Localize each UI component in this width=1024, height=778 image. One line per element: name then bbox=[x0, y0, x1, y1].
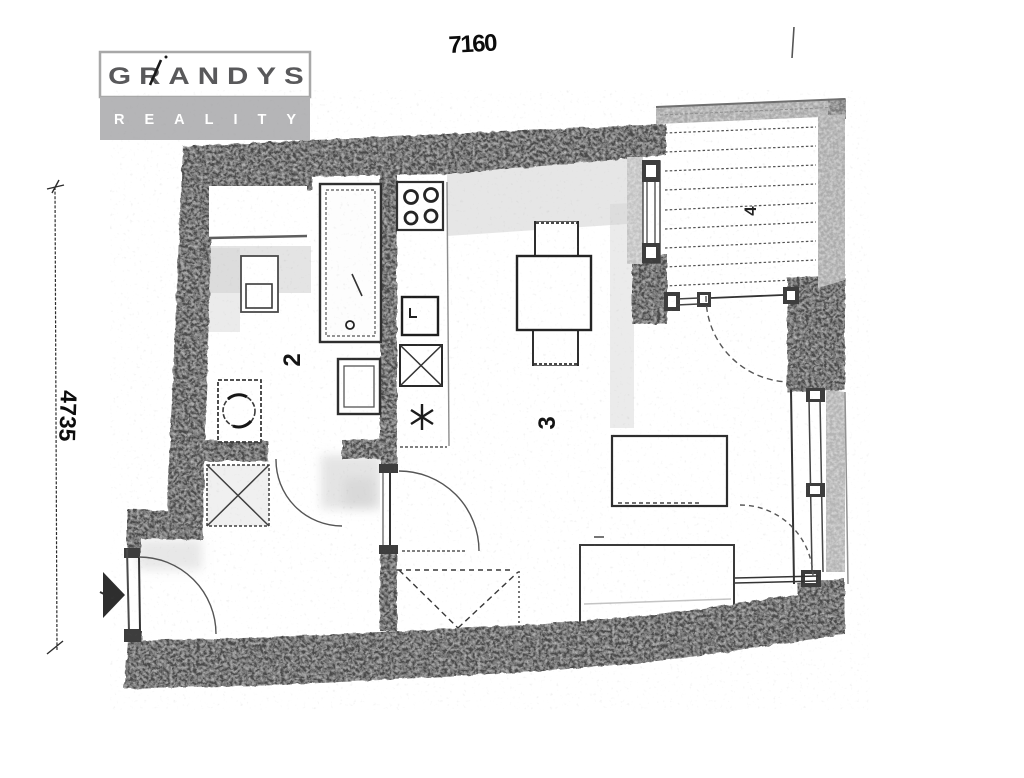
svg-text:4735: 4735 bbox=[54, 390, 82, 442]
svg-text:7160: 7160 bbox=[448, 29, 498, 59]
svg-text:GRANDYS: GRANDYS bbox=[108, 63, 312, 90]
